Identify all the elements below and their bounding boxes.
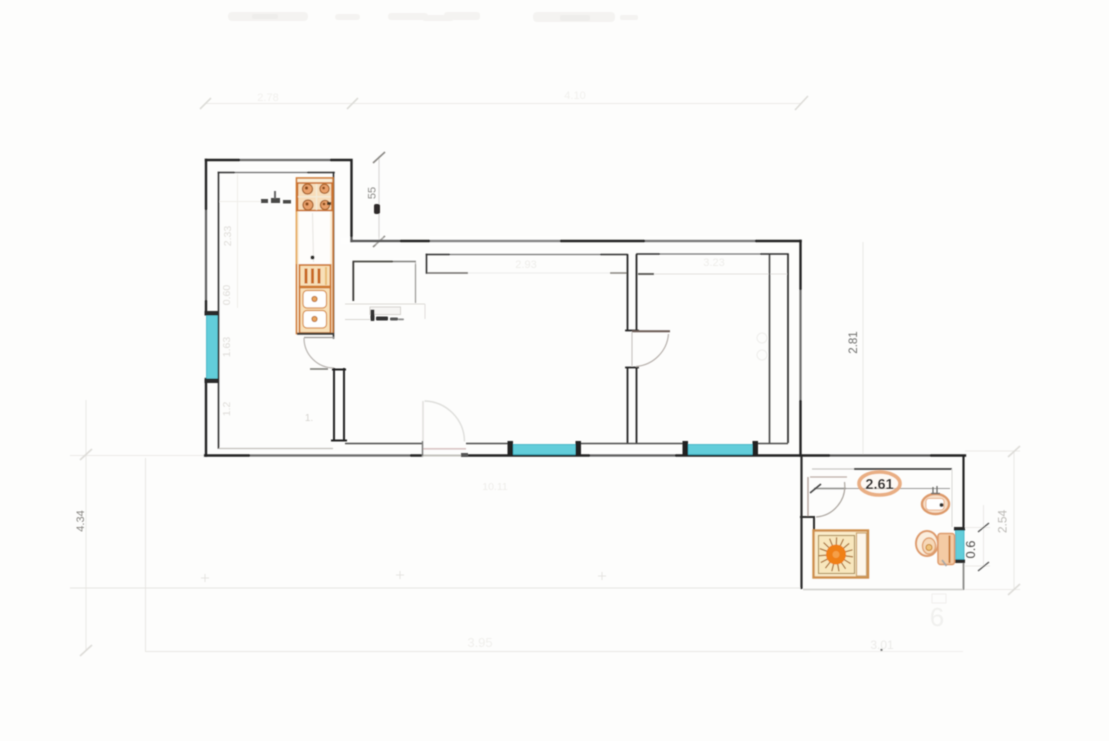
svg-text:0.6: 0.6	[963, 540, 978, 558]
svg-text:1.: 1.	[305, 413, 313, 424]
svg-text:1.63: 1.63	[221, 337, 233, 358]
svg-text:2.93: 2.93	[515, 259, 536, 271]
svg-text:10.11: 10.11	[482, 481, 508, 493]
svg-text:2.78: 2.78	[257, 92, 278, 104]
svg-text:2.33: 2.33	[222, 226, 234, 247]
svg-text:1.2: 1.2	[221, 402, 233, 417]
svg-text:2.61: 2.61	[865, 477, 893, 493]
svg-text:4.10: 4.10	[564, 90, 585, 102]
svg-text:4.34: 4.34	[75, 510, 87, 531]
svg-text:2.54: 2.54	[996, 509, 1010, 533]
svg-text:6: 6	[930, 602, 944, 632]
svg-text:3.95: 3.95	[467, 635, 492, 650]
svg-text:3.23: 3.23	[703, 257, 724, 269]
svg-text:0.60: 0.60	[221, 285, 233, 306]
svg-text:2.81: 2.81	[848, 331, 860, 353]
svg-text:55: 55	[367, 187, 379, 199]
